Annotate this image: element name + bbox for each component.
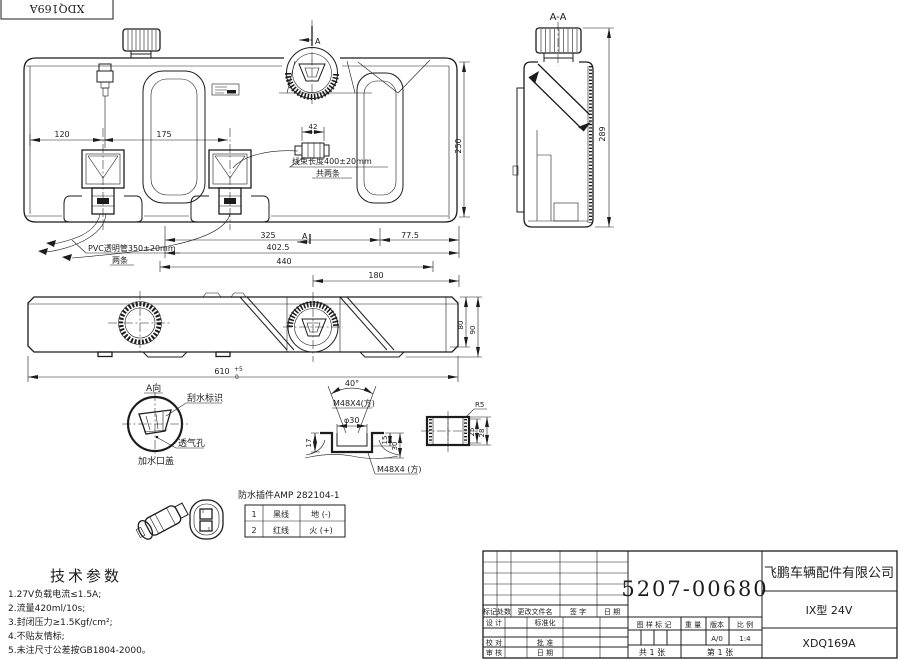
drawing-number: XDQ169A: [802, 637, 856, 650]
dim-325: 325: [260, 231, 275, 240]
scale-value: 1:4: [739, 635, 751, 643]
label-plate: [212, 84, 239, 95]
connector-pin-table: 1 黑线 地 (-) 2 红线 火 (+): [245, 505, 345, 537]
dim-42: 42: [309, 123, 318, 131]
view-a-title: A向: [146, 382, 161, 394]
section-letter-top: A: [315, 37, 321, 46]
scale-label: 比 例: [737, 620, 753, 629]
dim-440: 440: [276, 257, 291, 266]
dim-17: 17: [305, 439, 313, 448]
wiper-symbol-icon-2: [302, 319, 326, 336]
dim-610-tol-up: +5: [234, 366, 243, 373]
header-file: 更改文件名: [518, 607, 553, 616]
section-view-aa: A-A 289: [513, 12, 614, 227]
dim-15: 15: [381, 436, 389, 445]
model-label: IX型 24V: [806, 603, 853, 617]
vent-hole-label: 透气孔: [178, 437, 205, 449]
dim-30: 30: [391, 442, 399, 451]
level-sensor-plug: [97, 64, 113, 148]
dim-180: 180: [368, 271, 383, 280]
review-label: 审 核: [486, 648, 502, 657]
dim-402-5: 402.5: [267, 243, 290, 252]
harness-note-2: 共两条: [316, 168, 340, 178]
tech-item-2: 2.流量420ml/10s;: [8, 602, 85, 614]
wiper-mark-label: 刮水标识: [187, 392, 223, 404]
drawing-canvas: XDQ169A: [0, 0, 900, 660]
tech-item-4: 4.不贴友情标;: [8, 630, 65, 642]
dim-dia30: φ30: [344, 416, 359, 425]
pin2-no: 2: [251, 526, 256, 535]
header-mark: 标记: [483, 607, 497, 616]
tech-item-1: 1.27V负载电流≤1.5A;: [8, 588, 101, 600]
dim-80: 80: [457, 321, 465, 330]
thread-callout-top: M48X4(方): [333, 398, 375, 408]
pin1-no: 1: [251, 510, 256, 519]
dim-25: 25: [468, 428, 476, 437]
pvc-note-1: PVC透明管350±20mm: [88, 243, 176, 253]
date-label: 日 期: [537, 649, 553, 657]
connector-title: 防水插件AMP 282104-1: [238, 489, 340, 501]
section-title: A-A: [550, 12, 567, 23]
secondary-cap: [123, 29, 160, 58]
design-label: 设 计: [486, 618, 502, 627]
approve-label: 批 准: [537, 638, 553, 647]
pvc-note-2: 两条: [112, 255, 128, 265]
thread-detail: 40° M48X4(方) φ30 17 15 30 M48X4 (方) R5: [305, 379, 491, 474]
header-count: 处数: [497, 607, 511, 616]
tech-params-title: 技术参数: [50, 567, 122, 585]
header-sign: 签 字: [570, 607, 586, 616]
version-label: 版本: [710, 620, 724, 629]
dim-289: 289: [598, 126, 607, 141]
pin2-function: 火 (+): [309, 526, 333, 535]
dim-610-tol-dn: 0: [235, 374, 239, 381]
sheets-total: 共 1 张: [639, 648, 665, 657]
recess-left: [143, 71, 205, 203]
standardize-label: 标准化: [535, 618, 556, 627]
check-label: 校 对: [486, 638, 502, 647]
dim-90: 90: [469, 326, 477, 335]
engineering-drawing-sheet: XDQ169A: [0, 0, 900, 660]
bottom-view: 80 90 610 +5 0: [28, 291, 482, 382]
part-number: 5207-00680: [621, 577, 768, 601]
connector-face: [190, 500, 223, 539]
connector-detail: 防水插件AMP 282104-1 1 黑线 地 (-) 2 红线 火 (+): [134, 489, 345, 542]
company-name: 飞鹏车辆配件有限公司: [764, 565, 894, 581]
corner-label-box: XDQ169A: [1, 0, 113, 19]
filler-cap-label: 加水口盖: [138, 455, 174, 467]
harness-connector: [295, 143, 329, 158]
plug-detail: R5 25 28: [421, 401, 491, 452]
mark-label: 图 样 标 记: [637, 620, 672, 629]
harness-note-1: 线束长度400±20mm: [292, 156, 372, 166]
section-marker-top: A: [299, 26, 321, 46]
weight-label: 重 量: [685, 621, 701, 629]
corner-part-label: XDQ169A: [29, 2, 85, 15]
dim-40deg: 40°: [345, 379, 359, 388]
title-block: 飞鹏车辆配件有限公司 IX型 24V XDQ169A 5207-00680 图 …: [483, 551, 897, 658]
dim-610: 610: [214, 367, 229, 376]
section-cap: [536, 28, 581, 62]
dim-250: 250: [454, 138, 463, 153]
dim-28: 28: [478, 429, 486, 438]
tech-item-3: 3.封闭压力≥1.5Kgf/cm²;: [8, 616, 113, 628]
thread-callout-bottom: M48X4 (方): [377, 464, 421, 474]
pin1-function: 地 (-): [311, 509, 331, 519]
dim-r5: R5: [475, 401, 484, 409]
pin1-wire: 黑线: [273, 509, 289, 519]
tech-params: 技术参数 1.27V负载电流≤1.5A; 2.流量420ml/10s; 3.封闭…: [8, 567, 151, 656]
dim-175: 175: [156, 130, 171, 139]
sheet-number: 第 1 张: [707, 647, 733, 657]
pin2-wire: 红线: [273, 525, 289, 535]
dim-120: 120: [54, 130, 69, 139]
version-value: A/0: [711, 635, 723, 643]
dim-77-5: 77.5: [401, 231, 419, 240]
section-letter-bottom: A: [302, 232, 308, 241]
tech-item-5: 5.未注尺寸公差按GB1804-2000。: [8, 644, 151, 656]
connector-3d: [134, 500, 190, 543]
header-date: 日 期: [604, 608, 620, 616]
view-a-detail: A向 刮水标识 透气孔 加水口盖: [122, 382, 223, 467]
section-marker-bottom: A: [297, 232, 310, 244]
front-view: 42 线束长度400±20mm 共两条 120 175 250 A A: [24, 20, 470, 287]
